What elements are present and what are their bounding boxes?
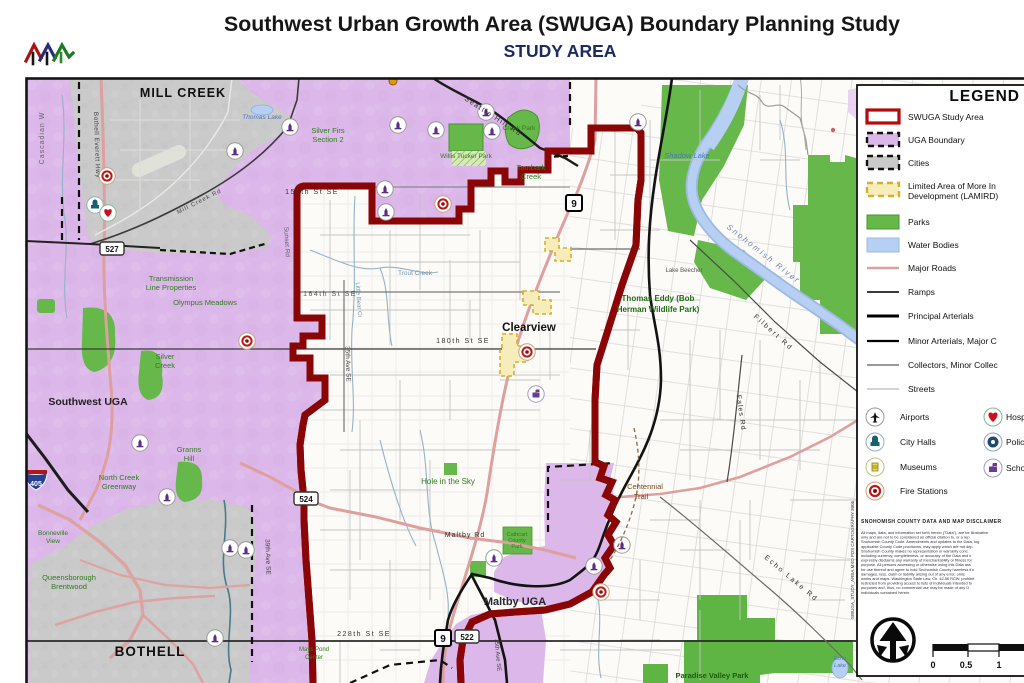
svg-text:9: 9 (440, 634, 446, 645)
svg-text:North Creek: North Creek (99, 473, 140, 482)
svg-text:Trail: Trail (634, 492, 649, 501)
svg-text:individuals contained herein.: individuals contained herein. (861, 590, 910, 595)
svg-text:Lake: Lake (834, 663, 846, 669)
svg-text:522: 522 (460, 633, 474, 642)
svg-text:Granns: Granns (177, 445, 202, 454)
svg-text:Development (LAMIRD): Development (LAMIRD) (908, 191, 998, 201)
svg-text:527: 527 (105, 245, 119, 254)
svg-text:Hill: Hill (184, 454, 195, 463)
svg-text:1: 1 (996, 660, 1001, 670)
svg-text:Limited Area of More In: Limited Area of More In (908, 181, 996, 191)
svg-text:39th Ave SE: 39th Ave SE (263, 539, 271, 576)
svg-text:Cascadian W: Cascadian W (39, 112, 46, 165)
svg-text:Clearview: Clearview (502, 322, 556, 334)
svg-text:405: 405 (30, 481, 42, 488)
svg-text:Center: Center (305, 655, 323, 661)
svg-text:164th St SE: 164th St SE (303, 291, 357, 298)
svg-text:SWUGA Study Area: SWUGA Study Area (908, 112, 984, 122)
svg-text:0.5: 0.5 (960, 660, 973, 670)
svg-text:0: 0 (930, 660, 935, 670)
svg-text:SWUGA_STUDY_AREA.MXD PDS CART: SWUGA_STUDY_AREA.MXD PDS CARTOGRAPHY 200… (850, 500, 855, 619)
svg-text:Echo: Echo (834, 656, 847, 662)
svg-text:Maltby Rd: Maltby Rd (445, 532, 486, 539)
svg-text:156th St SE: 156th St SE (285, 189, 339, 196)
svg-text:Creek: Creek (521, 172, 541, 181)
svg-text:Paradise Valley Park: Paradise Valley Park (676, 671, 750, 680)
svg-text:Creek: Creek (155, 361, 175, 370)
svg-text:Herman Wildlife Park): Herman Wildlife Park) (617, 305, 700, 314)
svg-text:Trout Creek: Trout Creek (398, 270, 433, 277)
svg-text:Olympus Meadows: Olympus Meadows (173, 298, 237, 307)
svg-text:Collectors, Minor Collec: Collectors, Minor Collec (908, 360, 998, 370)
svg-text:Willis Tucker Park: Willis Tucker Park (440, 153, 492, 160)
svg-text:Lake Beecher: Lake Beecher (665, 268, 702, 274)
svg-text:BOTHELL: BOTHELL (115, 644, 186, 659)
svg-text:Tambark: Tambark (517, 163, 546, 172)
svg-text:Thomas Lake: Thomas Lake (242, 114, 282, 121)
svg-text:Centennial: Centennial (627, 482, 663, 491)
svg-text:Transmission: Transmission (149, 274, 193, 283)
svg-text:Line Properties: Line Properties (146, 283, 197, 292)
svg-text:Southwest UGA: Southwest UGA (48, 396, 128, 408)
svg-text:Ramps: Ramps (908, 287, 935, 297)
svg-text:Streets: Streets (908, 384, 935, 394)
svg-text:Hole in the Sky: Hole in the Sky (421, 477, 475, 486)
svg-text:City Halls: City Halls (900, 437, 936, 447)
svg-text:Fire Stations: Fire Stations (900, 486, 948, 496)
svg-text:Bonneville: Bonneville (38, 530, 68, 537)
svg-text:Parks: Parks (908, 217, 930, 227)
svg-text:Queensborough: Queensborough (42, 573, 96, 582)
svg-text:Cities: Cities (908, 158, 929, 168)
svg-text:Schools: Schools (1006, 463, 1024, 473)
svg-text:Greenway: Greenway (102, 482, 136, 491)
svg-text:Major Roads: Major Roads (908, 263, 956, 273)
svg-text:Section 2: Section 2 (312, 135, 343, 144)
svg-text:Airports: Airports (900, 412, 929, 422)
svg-text:180th St SE: 180th St SE (436, 338, 490, 345)
svg-text:MILL CREEK: MILL CREEK (140, 86, 226, 100)
svg-text:Southwest Urban Growth Area (S: Southwest Urban Growth Area (SWUGA) Boun… (224, 12, 900, 36)
svg-text:524: 524 (299, 495, 313, 504)
svg-text:Water Bodies: Water Bodies (908, 240, 959, 250)
svg-text:35th Ave SE: 35th Ave SE (343, 346, 351, 383)
svg-text:Hospitals: Hospitals (1006, 412, 1024, 422)
svg-text:Maltby UGA: Maltby UGA (484, 596, 546, 608)
svg-text:9: 9 (571, 199, 577, 210)
svg-text:228th St SE: 228th St SE (337, 631, 391, 638)
svg-text:Thomas Eddy (Bob: Thomas Eddy (Bob (622, 294, 695, 303)
svg-text:Police: Police (1006, 437, 1024, 447)
svg-text:SNOHOMISH COUNTY DATA AND MAP: SNOHOMISH COUNTY DATA AND MAP DISCLAIMER (861, 519, 1002, 525)
svg-text:Silver Firs: Silver Firs (311, 126, 345, 135)
svg-text:Shadow Lake: Shadow Lake (664, 151, 709, 160)
svg-text:Brentwood: Brentwood (51, 582, 87, 591)
svg-text:Mays Pond: Mays Pond (299, 647, 329, 653)
svg-text:Principal Arterials: Principal Arterials (908, 311, 974, 321)
svg-text:Park: Park (511, 544, 523, 550)
svg-text:Museums: Museums (900, 462, 937, 472)
svg-text:Minor Arterials, Major C: Minor Arterials, Major C (908, 336, 997, 346)
svg-text:STUDY AREA: STUDY AREA (504, 41, 617, 61)
svg-text:LEGEND: LEGEND (949, 88, 1020, 105)
svg-text:Silver: Silver (156, 352, 175, 361)
svg-text:View: View (46, 538, 60, 545)
svg-text:UGA Boundary: UGA Boundary (908, 135, 965, 145)
